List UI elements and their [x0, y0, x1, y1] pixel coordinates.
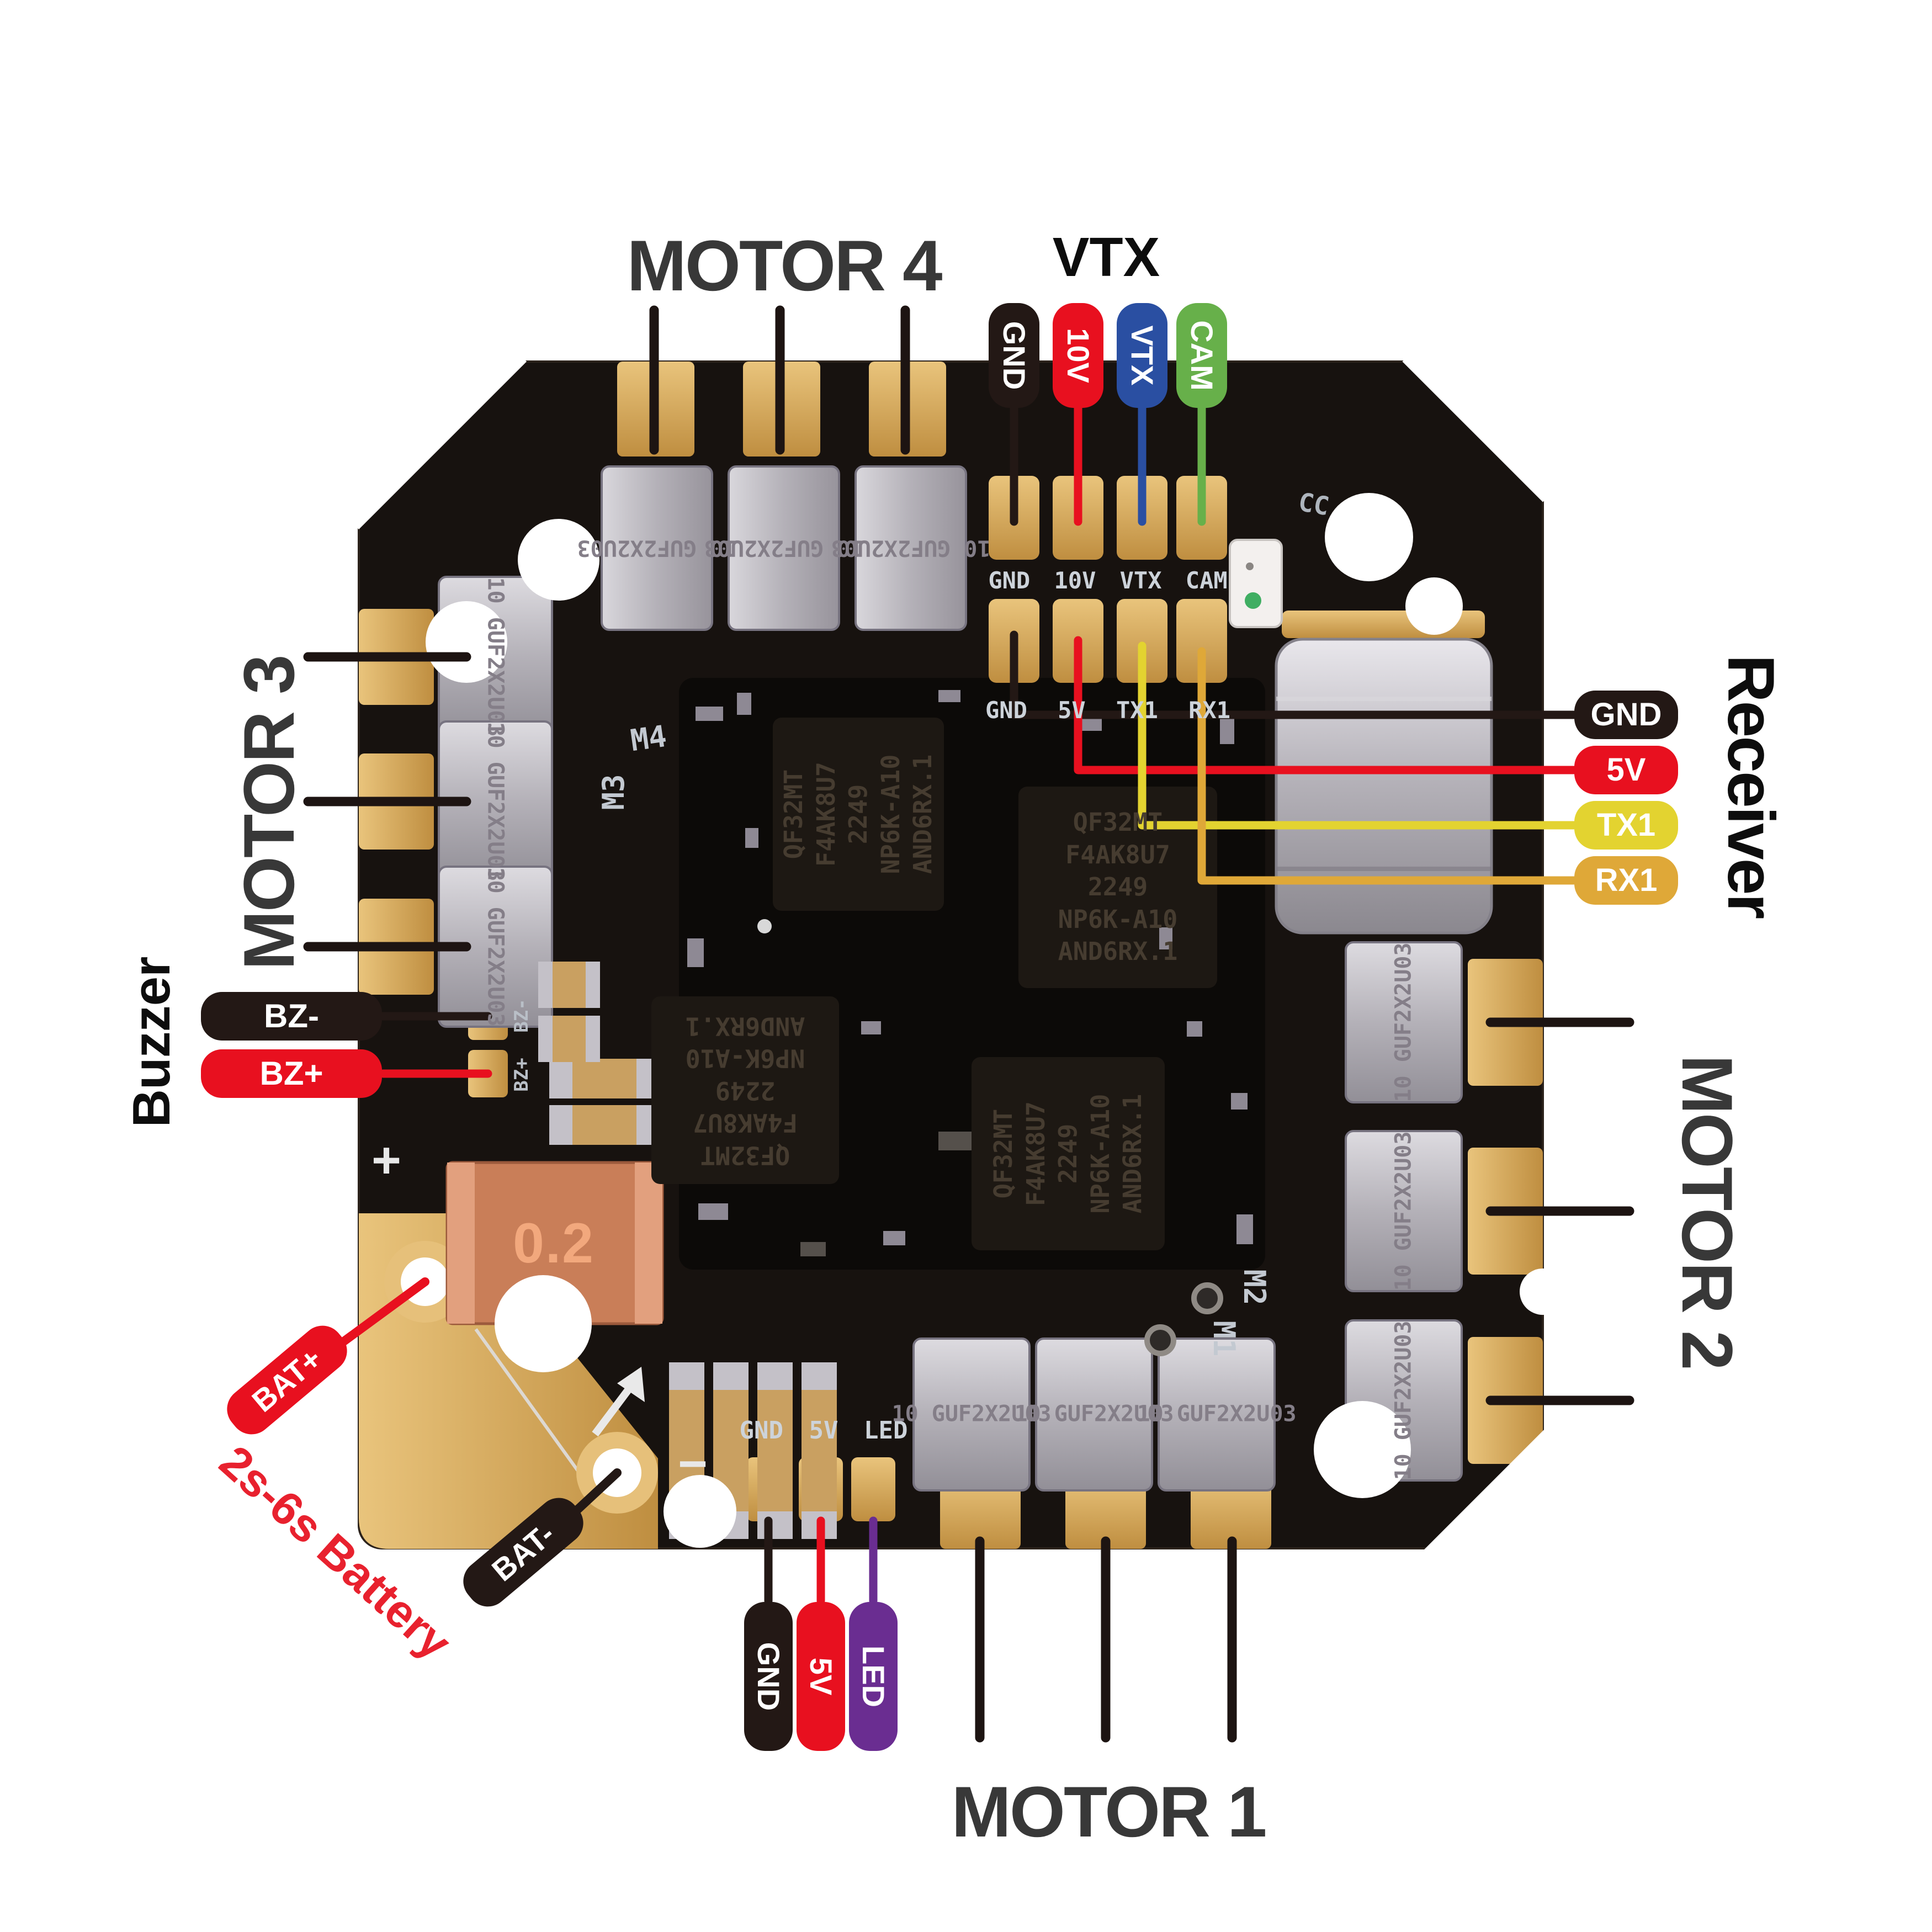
- capacitor-label: 10 GUF2X2U03: [482, 577, 508, 737]
- motor3-title: MOTOR 3: [233, 656, 305, 970]
- mcu-marking: QF32MTF4AK8U72249NP6K-A10AND6RX.1: [686, 1010, 805, 1171]
- receiver-title: Receiver: [1718, 655, 1784, 917]
- capacitor-label: 10 GUF2X2U03: [1137, 1401, 1297, 1427]
- vtx-pin-vtx: VTX: [1117, 303, 1167, 408]
- led-strip-pin-led: LED: [849, 1602, 898, 1751]
- capacitor-label: 10 GUF2X2U03: [1390, 943, 1416, 1102]
- receiver-pin-rx1: RX1: [1574, 856, 1678, 905]
- silk-plus-icon: +: [371, 1135, 401, 1186]
- silk-uart-row: GND 5V TX1 RX1: [985, 699, 1230, 722]
- motor2-title: MOTOR 2: [1671, 1055, 1743, 1369]
- capacitor-label: 10 GUF2X2U03: [831, 534, 991, 560]
- silk-led-row: GND 5V LED: [740, 1419, 908, 1443]
- capacitor-label: 10 GUF2X2U03: [482, 722, 508, 882]
- status-led: [1230, 540, 1282, 627]
- silk-minus-icon: −: [678, 1439, 708, 1489]
- mcu-marking: QF32MTF4AK8U72249NP6K-A10AND6RX.1: [1058, 806, 1178, 968]
- motor1-title: MOTOR 1: [952, 1776, 1266, 1848]
- buzzer-pin-bz-plus: BZ+: [201, 1049, 382, 1098]
- receiver-pin-5v: 5V: [1574, 746, 1678, 794]
- silk-m3: M3: [599, 774, 629, 810]
- silk-bz-plus: BZ+: [512, 1058, 531, 1091]
- shunt-value: 0.2: [513, 1215, 595, 1271]
- motor4-title: MOTOR 4: [627, 230, 941, 301]
- pinout-diagram: MOTOR 4 VTX MOTOR 3 Buzzer Receiver MOTO…: [0, 0, 1932, 1932]
- vtx-pin-gnd: GND: [989, 303, 1039, 408]
- led-strip-pin-gnd: GND: [744, 1602, 793, 1751]
- receiver-pin-gnd: GND: [1574, 691, 1678, 739]
- silk-cc: CC: [1297, 489, 1331, 519]
- buzzer-title: Buzzer: [125, 957, 178, 1128]
- silk-m4: M4: [629, 721, 668, 756]
- silk-m2: M2: [1239, 1269, 1269, 1305]
- vtx-pin-cam: CAM: [1176, 303, 1227, 408]
- led-strip-pin-5v: 5V: [797, 1602, 845, 1751]
- silk-vtx-row: GND 10V VTX CAM: [988, 569, 1227, 592]
- capacitor-label: 10 GUF2X2U03: [1390, 1132, 1416, 1291]
- silk-bz-minus: BZ-: [512, 999, 531, 1032]
- vtx-title: VTX: [1053, 230, 1160, 285]
- capacitor-label: 10 GUF2X2U03: [482, 867, 508, 1027]
- buzzer-pin-bz-minus: BZ-: [201, 992, 382, 1041]
- mcu-marking: QF32MTF4AK8U72249NP6K-A10AND6RX.1: [988, 1094, 1149, 1214]
- motor1-wires: [980, 1541, 1232, 1738]
- receiver-pin-tx1: TX1: [1574, 801, 1678, 850]
- silk-m1: M1: [1209, 1320, 1239, 1356]
- capacitor-label: 10 GUF2X2U03: [1390, 1321, 1416, 1480]
- vtx-pin-10v: 10V: [1053, 303, 1103, 408]
- usb-c-connector: [1276, 639, 1492, 933]
- mcu-marking: QF32MTF4AK8U72249NP6K-A10AND6RX.1: [778, 755, 940, 874]
